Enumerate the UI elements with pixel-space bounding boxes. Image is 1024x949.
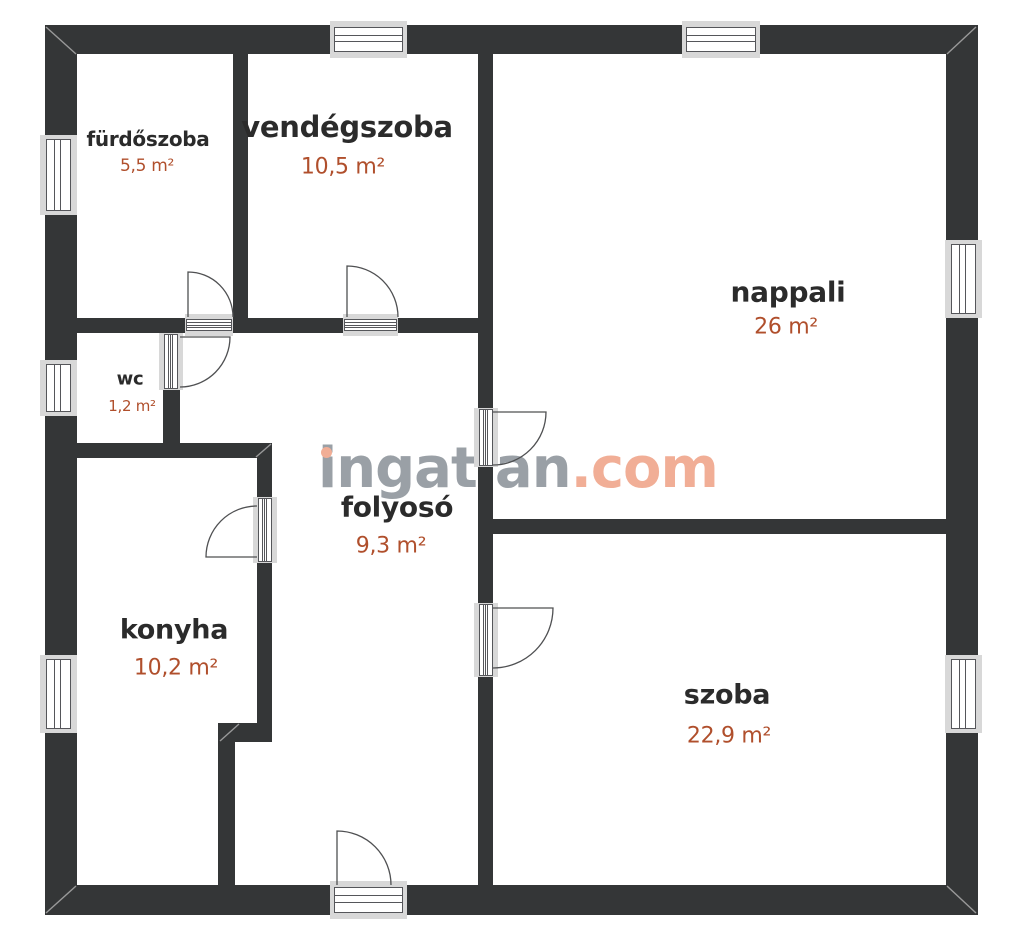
- window-pane: [46, 364, 71, 412]
- door-swing-furdoszoba: [188, 272, 233, 317]
- watermark: ingatlan.com: [318, 441, 718, 497]
- room-area-folyoso: 9,3 m²: [356, 534, 426, 559]
- window-pane: [686, 27, 756, 52]
- door-pane: [479, 409, 493, 466]
- door-frame-furdoszoba: [185, 314, 233, 336]
- wall-nappali-szoba: [493, 519, 946, 534]
- wall-central-top: [478, 54, 493, 408]
- room-area-furdoszoba: 5,5 m²: [120, 156, 174, 176]
- room-label-vendegszoba: vendégszoba: [241, 110, 453, 144]
- door-frame-nappali: [474, 408, 498, 467]
- window-pane: [46, 139, 71, 211]
- room-label-furdoszoba: fürdőszoba: [87, 127, 210, 151]
- wall-south-vendegszoba: [398, 318, 478, 333]
- door-frame-szoba: [474, 603, 498, 677]
- room-label-konyha: konyha: [120, 615, 228, 646]
- window-pane: [334, 27, 403, 52]
- door-frame-vendegszoba: [343, 314, 398, 336]
- outer-wall-bottom: [45, 885, 978, 915]
- window-left-wc: [40, 360, 77, 416]
- door-swing-entry: [337, 831, 391, 885]
- door-pane: [479, 604, 493, 676]
- floor-plan: ingatlan.com: [0, 0, 1024, 949]
- door-pane: [258, 498, 272, 562]
- window-left-konyha: [40, 655, 77, 733]
- room-area-konyha: 10,2 m²: [134, 656, 218, 681]
- watermark-i-dot-accent: [321, 447, 332, 458]
- window-pane: [46, 659, 71, 729]
- window-right-szoba: [945, 655, 982, 733]
- window-pane: [951, 244, 976, 314]
- door-pane: [334, 887, 403, 913]
- wall-konyha-right-lower: [218, 742, 235, 885]
- wall-south-furdoszoba-right: [233, 318, 343, 333]
- door-pane: [344, 319, 397, 331]
- room-label-wc: wc: [117, 369, 144, 390]
- room-label-szoba: szoba: [684, 680, 770, 711]
- window-pane: [951, 659, 976, 729]
- door-frame-konyha: [253, 497, 277, 563]
- outer-wall-right: [946, 25, 978, 915]
- window-top-nappali: [682, 21, 760, 58]
- window-left-furdoszoba: [40, 135, 77, 215]
- door-swing-vendegszoba: [347, 266, 398, 317]
- room-label-nappali: nappali: [731, 276, 846, 309]
- door-pane: [186, 319, 232, 331]
- room-area-nappali: 26 m²: [754, 315, 818, 340]
- entry-door-frame: [330, 881, 407, 919]
- wall-konyha-top: [77, 443, 272, 458]
- wall-south-furdoszoba-left: [77, 318, 185, 333]
- wall-konyha-jog: [218, 723, 272, 742]
- room-area-szoba: 22,9 m²: [687, 724, 771, 749]
- wall-konyha-right-mid: [257, 563, 272, 730]
- door-pane: [164, 334, 178, 389]
- watermark-tld: .com: [571, 436, 718, 501]
- outer-wall-top: [45, 25, 978, 54]
- room-area-vendegszoba: 10,5 m²: [301, 155, 385, 180]
- window-right-nappali: [945, 240, 982, 318]
- room-label-folyoso: folyosó: [341, 491, 453, 524]
- door-swing-szoba: [493, 608, 553, 668]
- door-swing-konyha: [206, 506, 257, 557]
- wall-konyha-right-upper: [257, 458, 272, 497]
- wall-furdoszoba-vendegszoba: [233, 54, 248, 320]
- room-area-wc: 1,2 m²: [108, 397, 155, 415]
- wall-central-bottom: [478, 677, 493, 885]
- door-swing-wc: [180, 337, 230, 387]
- wall-central-mid: [478, 467, 493, 603]
- door-frame-wc: [159, 333, 183, 390]
- window-top-vendegszoba: [330, 21, 407, 58]
